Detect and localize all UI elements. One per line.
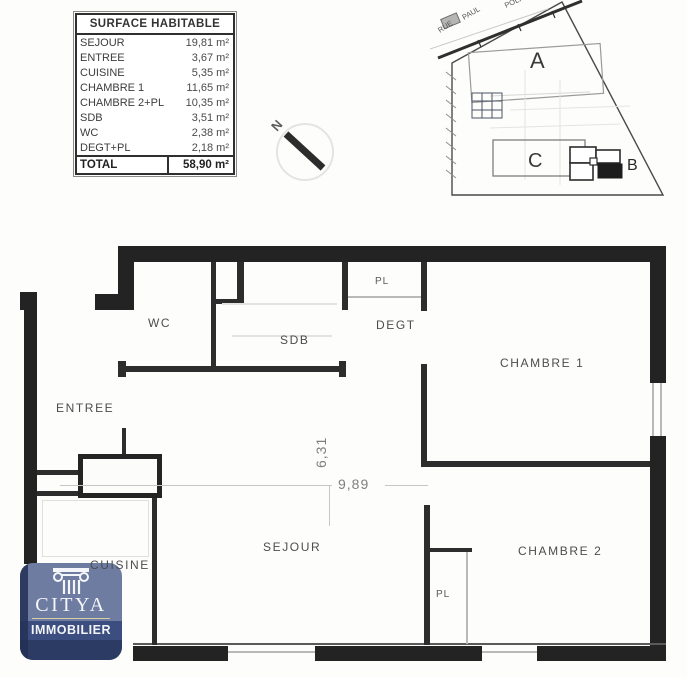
north-label: N (268, 117, 285, 134)
row-label: CHAMBRE 2+PL (80, 97, 164, 109)
wall-chambre1-chambre2 (424, 461, 650, 467)
total-label: TOTAL (77, 157, 167, 173)
table-total-row: TOTAL 58,90 m² (77, 155, 233, 173)
row-value: 10,35 m² (186, 97, 229, 109)
wall-topleft-step-horizontal (95, 294, 134, 310)
building-b-label: B (627, 157, 638, 174)
total-value: 58,90 m² (167, 157, 233, 173)
window-sill-line-bottom (133, 643, 666, 645)
logo-brand-text: CITYA (35, 595, 106, 615)
wall-cuisine-sejour (152, 498, 157, 645)
room-label-sejour: SEJOUR (263, 540, 321, 554)
wall-sdb-bottom (120, 366, 345, 372)
street-name-polio: POLIO (503, 0, 528, 10)
row-value: 3,67 m² (192, 52, 229, 64)
row-value: 19,81 m² (186, 37, 229, 49)
wall-left (24, 292, 37, 564)
table-row: ENTREE 3,67 m² (77, 50, 233, 65)
table-row: WC 2,38 m² (77, 125, 233, 140)
dimension-line-horizontal (385, 485, 428, 486)
sdb-fixture-line (222, 303, 337, 305)
row-value: 2,38 m² (192, 127, 229, 139)
room-label-chambre2: CHAMBRE 2 (518, 544, 602, 558)
window-right-pane-line (660, 383, 662, 436)
wall-sejour-chambre2 (424, 505, 430, 645)
duct-shaft-vertical (237, 262, 244, 304)
wall-degt-chambre1-upper (421, 262, 427, 311)
recess-shelf-top (37, 470, 78, 475)
table-row: CUISINE 5,35 m² (77, 65, 233, 80)
surface-table: SURFACE HABITABLE SEJOUR 19,81 m² ENTREE… (75, 13, 235, 175)
table-row: CHAMBRE 1 11,65 m² (77, 80, 233, 95)
subject-building-highlight (598, 164, 622, 178)
dimension-line-horizontal (60, 485, 332, 486)
parking-grid (472, 93, 502, 118)
north-arrow: N (253, 106, 353, 201)
wall-bottom-segment-2 (315, 646, 482, 661)
room-label-pl-bottom: PL (436, 589, 450, 600)
window-bottom-chambre2 (482, 651, 537, 653)
site-plan: A C B RU (430, 0, 687, 205)
table-row: CHAMBRE 2+PL 10,35 m² (77, 95, 233, 110)
north-needle (286, 134, 323, 168)
room-label-degt: DEGT (376, 318, 416, 332)
wall-bottom-segment-1 (133, 646, 228, 661)
wall-right-upper (650, 246, 666, 383)
street-name-paul: PAUL (461, 4, 482, 21)
wall-top (118, 246, 666, 262)
closet-pl-front-line (348, 296, 422, 298)
room-label-wc: WC (148, 316, 171, 330)
column-capital-icon (48, 568, 94, 594)
table-row: SEJOUR 19,81 m² (77, 35, 233, 50)
window-right-pane-line (652, 383, 654, 436)
dimension-line-vertical (329, 486, 330, 526)
entry-door-leaf (122, 428, 126, 457)
logo-tagline: IMMOBILIER (20, 621, 122, 640)
room-label-cuisine: CUISINE (90, 558, 150, 572)
wall-wc-sdb (211, 262, 216, 372)
wall-sdb-degt (342, 262, 348, 310)
wall-sdb-bottom-cap-left (118, 361, 126, 377)
kitchen-counter-hint (42, 500, 149, 557)
room-label-entree: ENTREE (56, 401, 114, 415)
row-label: SDB (80, 112, 103, 124)
logo-edge-shadow (20, 563, 28, 660)
row-value: 5,35 m² (192, 67, 229, 79)
row-value: 11,65 m² (186, 82, 229, 94)
dimension-width: 9,89 (338, 476, 369, 492)
wall-sdb-bottom-cap-right (339, 361, 346, 377)
room-label-chambre1: CHAMBRE 1 (500, 356, 584, 370)
room-label-pl-top: PL (375, 276, 389, 287)
floorplan-document: SURFACE HABITABLE SEJOUR 19,81 m² ENTREE… (0, 0, 687, 677)
building-a-label: A (530, 48, 545, 73)
row-label: DEGT+PL (80, 142, 130, 154)
surface-table-title: SURFACE HABITABLE (77, 15, 233, 35)
logo-divider (32, 618, 110, 619)
building-b-cluster (570, 147, 622, 180)
citya-immobilier-logo: CITYA IMMOBILIER (20, 563, 122, 660)
logo-footer-band (20, 640, 122, 660)
wall-bottom-segment-3 (537, 646, 666, 661)
recess-shelf-bottom (37, 491, 78, 496)
wall-right-lower (650, 436, 666, 661)
window-bottom-sejour (228, 651, 315, 653)
row-label: CUISINE (80, 67, 125, 79)
boundary-hatching (446, 72, 456, 178)
closet-chambre2-side (466, 552, 468, 644)
dimension-height: 6,31 (313, 437, 329, 468)
row-label: WC (80, 127, 98, 139)
building-c-label: C (528, 150, 542, 172)
row-value: 2,18 m² (192, 142, 229, 154)
room-label-sdb: SDB (280, 333, 309, 347)
entry-closet-box (78, 454, 162, 498)
row-label: CHAMBRE 1 (80, 82, 144, 94)
row-label: SEJOUR (80, 37, 125, 49)
table-row: SDB 3,51 m² (77, 110, 233, 125)
row-label: ENTREE (80, 52, 125, 64)
row-value: 3,51 m² (192, 112, 229, 124)
wall-degt-chambre1-lower (421, 364, 427, 467)
table-row: DEGT+PL 2,18 m² (77, 140, 233, 155)
